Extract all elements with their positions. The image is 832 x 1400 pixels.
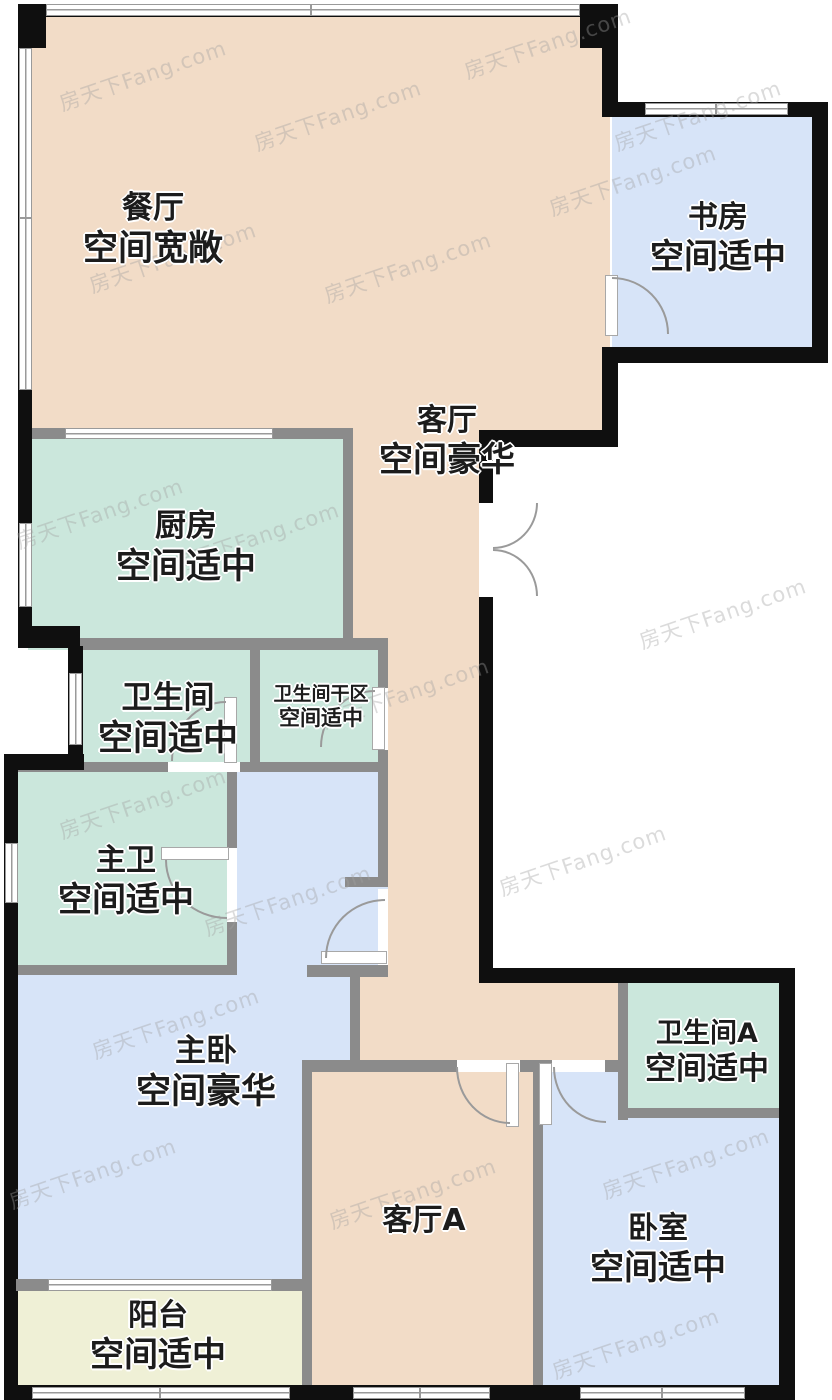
exterior-wall	[479, 597, 493, 983]
exterior-wall	[479, 968, 794, 983]
room-grade: 空间适中	[0, 880, 296, 921]
room-label-bathroom-dry: 卫生间干区空间适中	[151, 683, 491, 732]
room-label-master-bedroom: 主卧空间豪华	[36, 1033, 376, 1114]
window	[662, 1387, 745, 1399]
watermark: 房天下Fang.com	[635, 570, 810, 655]
interior-wall	[618, 1108, 794, 1118]
room-grade: 空间宽敞	[0, 228, 323, 271]
window	[32, 1387, 160, 1399]
room-name: 主卧	[36, 1033, 376, 1071]
interior-wall	[240, 762, 388, 772]
exterior-wall	[602, 4, 618, 117]
room-name: 厨房	[16, 508, 356, 546]
window	[420, 1387, 490, 1399]
room-grade: 空间适中	[488, 1248, 828, 1289]
window	[311, 4, 580, 16]
window	[716, 103, 788, 115]
room-name: 卫生间干区	[151, 683, 491, 706]
room-label-bathroom-a: 卫生间A空间适中	[537, 1018, 832, 1089]
room-label-kitchen: 厨房空间适中	[16, 508, 356, 589]
room-name: 客厅	[277, 403, 617, 440]
room-label-bedroom: 卧室空间适中	[488, 1211, 828, 1289]
room-grade: 空间豪华	[36, 1071, 376, 1114]
room-grade: 空间适中	[0, 1335, 328, 1376]
slider-wall-stub	[16, 1279, 48, 1291]
exterior-wall	[602, 347, 828, 363]
interior-wall	[378, 772, 388, 887]
interior-wall	[307, 965, 388, 977]
floor-plan: 房天下Fang.com房天下Fang.com房天下Fang.com房天下Fang…	[0, 0, 832, 1400]
room-name: 阳台	[0, 1298, 328, 1335]
interior-wall	[227, 772, 237, 850]
interior-wall	[345, 877, 388, 887]
room-label-living: 客厅空间豪华	[277, 403, 617, 481]
door-opening	[168, 762, 240, 772]
room-label-master-bathroom: 主卫空间适中	[0, 843, 296, 921]
window	[160, 1387, 290, 1399]
watermark: 房天下Fang.com	[495, 817, 670, 902]
room-name: 主卫	[0, 843, 296, 880]
room-name: 餐厅	[0, 190, 323, 228]
slider-wall-stub	[272, 1279, 307, 1291]
room-label-dining: 餐厅空间宽敞	[0, 190, 323, 271]
room-grade: 空间适中	[548, 237, 832, 278]
interior-wall	[28, 428, 65, 439]
room-name: 卫生间A	[537, 1018, 832, 1051]
door-swing-arc	[493, 549, 538, 596]
room-name: 卧室	[488, 1211, 828, 1248]
room-label-balcony: 阳台空间适中	[0, 1298, 328, 1376]
exterior-wall	[18, 626, 80, 648]
room-name: 书房	[548, 200, 832, 237]
interior-wall	[16, 965, 237, 975]
door-swing-arc	[493, 503, 538, 549]
window	[645, 103, 716, 115]
room-grade: 空间适中	[16, 546, 356, 589]
window	[353, 1387, 420, 1399]
room-grade: 空间豪华	[277, 440, 617, 481]
door-opening	[479, 503, 493, 597]
window	[580, 1387, 662, 1399]
window	[48, 1279, 272, 1291]
window	[46, 4, 311, 16]
room-grade: 空间适中	[151, 706, 491, 732]
interior-wall	[78, 638, 388, 650]
room-grade: 空间适中	[537, 1051, 832, 1089]
window	[65, 428, 273, 439]
room-label-study: 书房空间适中	[548, 200, 832, 278]
